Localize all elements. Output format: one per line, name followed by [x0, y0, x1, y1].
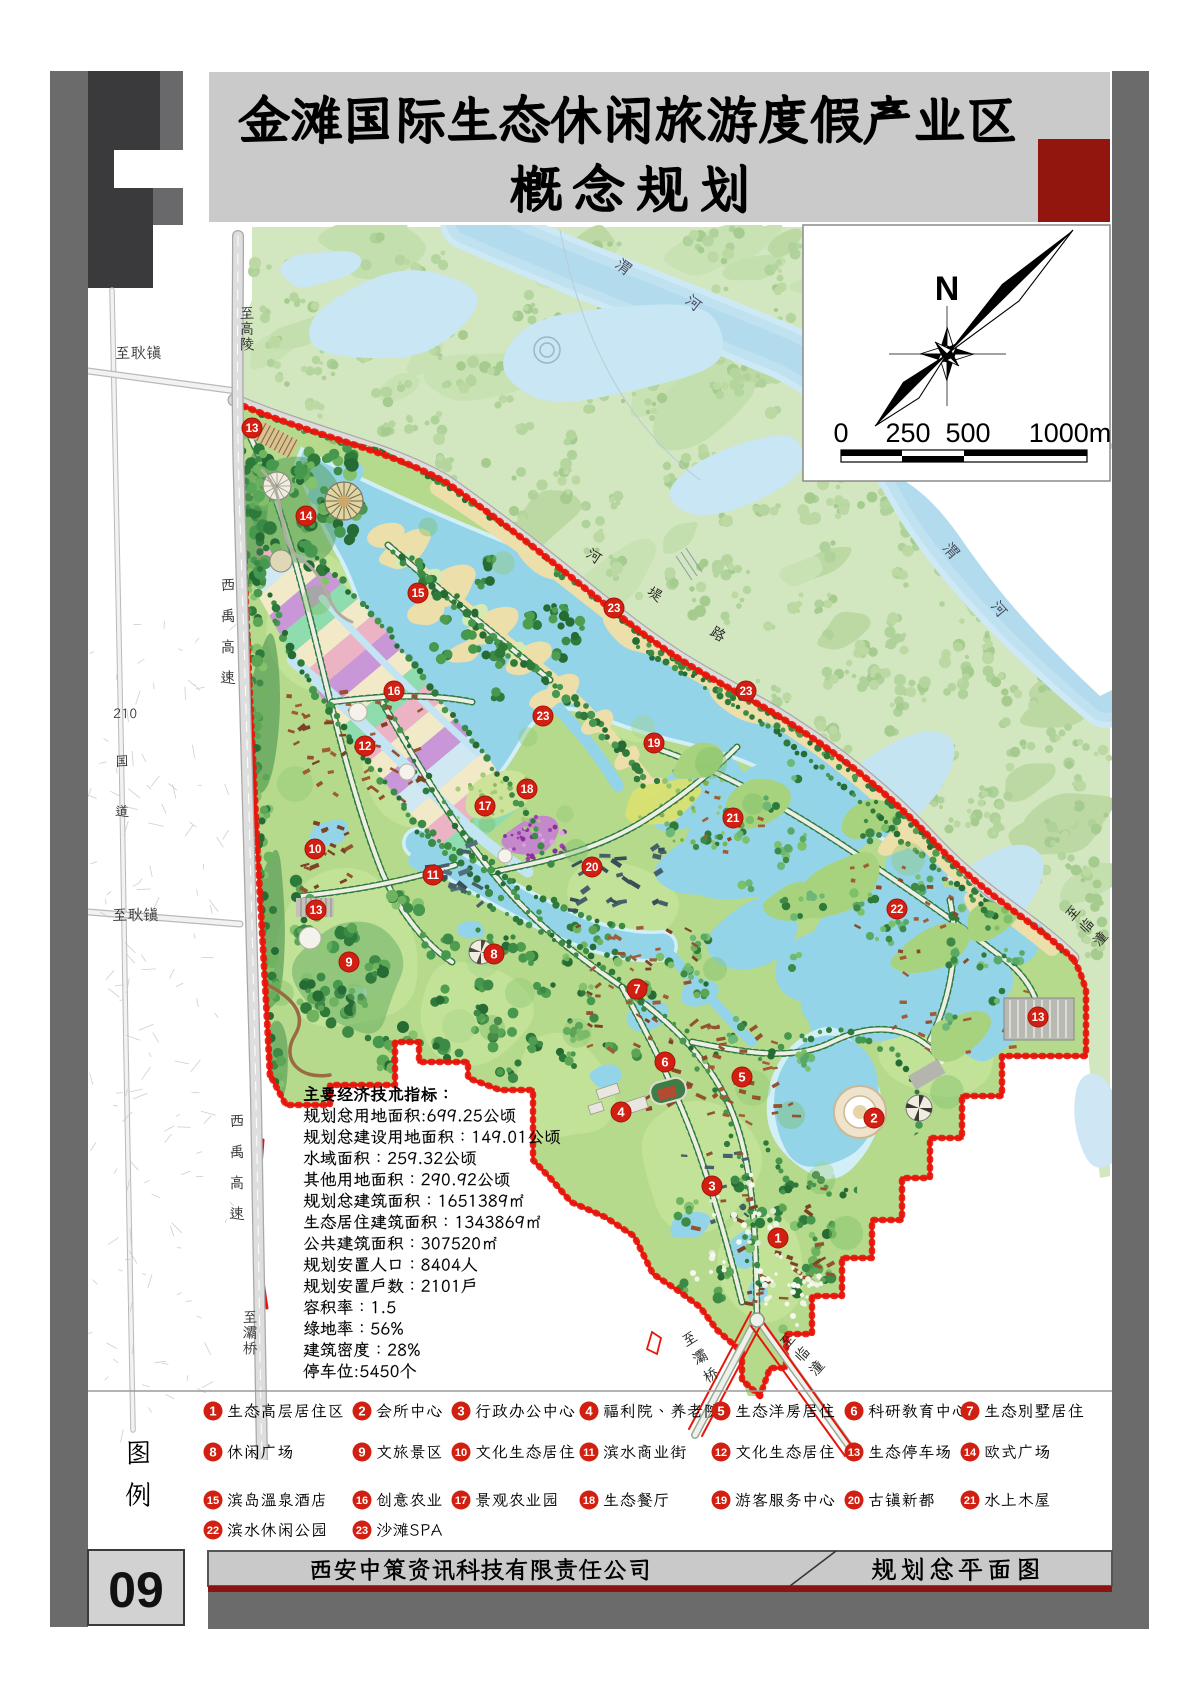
svg-text:4: 4: [585, 1404, 593, 1419]
svg-text:13: 13: [310, 905, 323, 917]
svg-text:3: 3: [708, 1179, 715, 1194]
svg-text:3: 3: [457, 1404, 464, 1419]
svg-text:18: 18: [583, 1495, 595, 1507]
svg-text:N: N: [935, 270, 960, 308]
svg-text:5: 5: [738, 1070, 745, 1085]
svg-text:6: 6: [850, 1404, 857, 1419]
svg-text:1: 1: [209, 1404, 216, 1419]
svg-text:9: 9: [358, 1445, 365, 1460]
svg-text:14: 14: [964, 1447, 977, 1459]
svg-text:15: 15: [412, 588, 425, 600]
svg-text:250: 250: [885, 418, 930, 448]
svg-text:11: 11: [583, 1447, 595, 1459]
svg-text:17: 17: [479, 801, 492, 813]
svg-text:18: 18: [521, 784, 534, 796]
svg-text:11: 11: [427, 870, 440, 882]
svg-text:5: 5: [717, 1404, 724, 1419]
svg-text:8: 8: [209, 1445, 216, 1460]
svg-text:7: 7: [966, 1404, 973, 1419]
svg-text:12: 12: [359, 741, 372, 753]
svg-text:10: 10: [309, 844, 322, 856]
svg-text:13: 13: [246, 423, 259, 435]
svg-text:2: 2: [870, 1111, 877, 1126]
svg-text:8: 8: [490, 947, 497, 962]
svg-text:19: 19: [715, 1495, 727, 1507]
svg-text:19: 19: [648, 738, 661, 750]
svg-text:1000m: 1000m: [1029, 418, 1112, 448]
svg-text:10: 10: [455, 1447, 467, 1459]
svg-text:12: 12: [715, 1447, 727, 1459]
svg-text:21: 21: [964, 1495, 976, 1507]
svg-text:20: 20: [848, 1495, 860, 1507]
svg-text:22: 22: [891, 904, 904, 916]
svg-text:23: 23: [537, 711, 550, 723]
svg-text:4: 4: [617, 1105, 625, 1120]
svg-text:9: 9: [345, 955, 352, 970]
svg-text:500: 500: [945, 418, 990, 448]
svg-text:15: 15: [207, 1495, 219, 1507]
svg-text:13: 13: [1032, 1012, 1045, 1024]
svg-text:7: 7: [633, 982, 640, 997]
svg-text:23: 23: [740, 686, 753, 698]
svg-text:13: 13: [848, 1447, 860, 1459]
svg-text:09: 09: [108, 1562, 164, 1618]
svg-text:6: 6: [661, 1055, 668, 1070]
svg-text:21: 21: [727, 813, 740, 825]
svg-text:17: 17: [455, 1495, 467, 1507]
svg-text:16: 16: [388, 686, 401, 698]
svg-text:20: 20: [586, 862, 599, 874]
svg-text:22: 22: [207, 1525, 219, 1537]
svg-text:23: 23: [608, 603, 621, 615]
svg-text:0: 0: [833, 418, 848, 448]
svg-text:16: 16: [356, 1495, 368, 1507]
svg-text:1: 1: [774, 1231, 781, 1246]
svg-text:14: 14: [300, 511, 313, 523]
svg-text:23: 23: [356, 1525, 368, 1537]
svg-text:2: 2: [358, 1404, 365, 1419]
